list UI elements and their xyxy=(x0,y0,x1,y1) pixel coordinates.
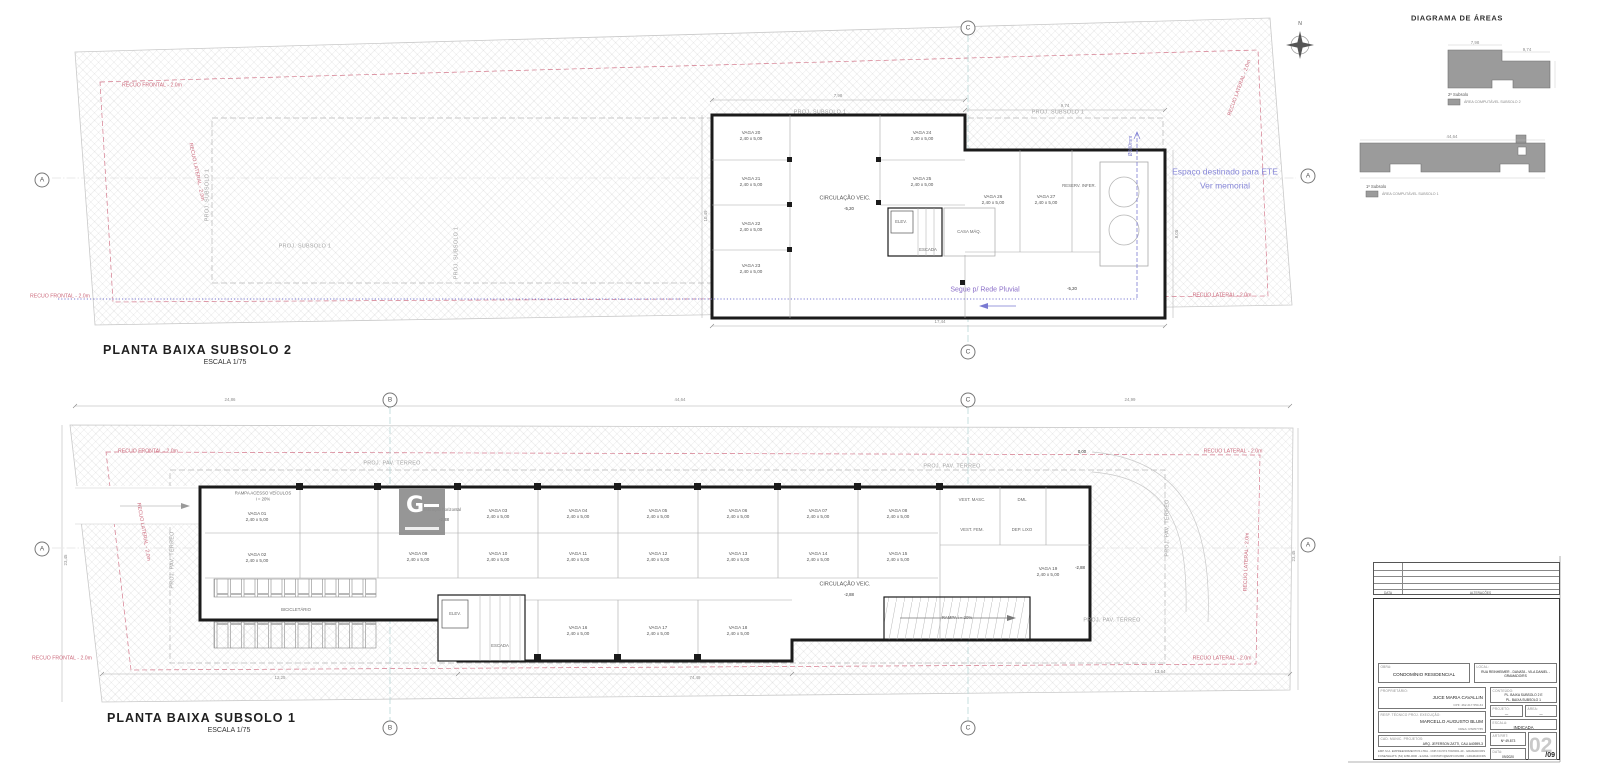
area-diagram-bump xyxy=(1516,135,1526,143)
projeto-label: PROJETO: xyxy=(1493,707,1510,711)
drawing-linework xyxy=(0,0,1600,778)
diagram-title: DIAGRAMA DE ÁREAS xyxy=(1411,14,1503,23)
proprietario-doc: CPF: 462.217.550-34 xyxy=(1453,703,1483,707)
resp-tecnico-box: RESP. TÉCNICO PROJ. EXECUÇÃO: MARCELLO A… xyxy=(1378,711,1486,733)
escala-box: ESCALA: INDICADA xyxy=(1490,719,1557,730)
drawing-sheet: PROJ. SUBSOLO 1PROJ. SUBSOLO 1PROJ. SUBS… xyxy=(0,0,1600,778)
plan1-scale: ESCALA 1/75 xyxy=(208,727,251,734)
plan1-title: PLANTA BAIXA SUBSOLO 1 xyxy=(107,711,296,725)
resp-tecnico-label: RESP. TÉCNICO PROJ. EXECUÇÃO: xyxy=(1381,713,1441,717)
art-value: Nº 49.873 xyxy=(1493,739,1523,743)
plan2-scale: ESCALA 1/75 xyxy=(204,359,247,366)
bike-rack-1 xyxy=(214,579,376,597)
bike-rack-2 xyxy=(214,622,376,648)
area-diagram-void xyxy=(1518,147,1526,155)
revision-table: DATA ALTERAÇÕES xyxy=(1373,562,1560,595)
revision-col-data: DATA xyxy=(1374,589,1402,596)
local-box: LOCAL: RUA REINHEIMER - DANATA - VILA DA… xyxy=(1474,663,1557,683)
legend-subsolo2-item: ÁREA COMPUTÁVEL SUBSOLO 2 xyxy=(1464,100,1521,104)
driveway-arc-inner xyxy=(1092,472,1186,612)
local-label: LOCAL: xyxy=(1477,665,1490,669)
projeto-box: PROJETO: — xyxy=(1490,705,1523,717)
north-arrow-icon xyxy=(1286,31,1314,59)
plan2-title: PLANTA BAIXA SUBSOLO 2 xyxy=(103,343,292,357)
data-box: DATA: 09/2020 xyxy=(1490,748,1526,760)
area-diagram-subsolo1 xyxy=(1360,143,1545,172)
north-label: N xyxy=(1298,21,1302,27)
logo-arm xyxy=(424,504,439,507)
projeto-value: — xyxy=(1493,712,1520,716)
conteudo-box: CONTEÚDO: PL. BAIXA SUBSOLO 2 E PL. BAIX… xyxy=(1490,687,1557,703)
obra-box: OBRA: CONDOMÍNIO RESIDENCIAL xyxy=(1378,663,1470,683)
area-label: ÁREA: xyxy=(1528,707,1539,711)
legend-swatch-subsolo2 xyxy=(1448,99,1460,105)
sheet-total: /09 xyxy=(1545,752,1555,759)
cad-munic-box: CAD. MUNIC. PROJETOS: ARQ. JEFERSON ZATT… xyxy=(1378,735,1486,747)
title-block: DATA ALTERAÇÕES OBRA: CONDOMÍNIO RESIDEN… xyxy=(1373,562,1560,762)
art-box: ART/RRT: Nº 49.873 xyxy=(1490,732,1526,746)
local-value: RUA REINHEIMER - DANATA - VILA DANIEL - … xyxy=(1477,670,1554,679)
art-label: ART/RRT: xyxy=(1493,734,1509,738)
watermark-logo: G xyxy=(399,489,445,535)
obra-value: CONDOMÍNIO RESIDENCIAL xyxy=(1381,672,1467,677)
proprietario-value: JUCE MARIA CAVALLIN xyxy=(1381,695,1483,700)
legend-subsolo1-item: ÁREA COMPUTÁVEL SUBSOLO 1 xyxy=(1382,192,1439,196)
fine-print-2: FONE/WHATS: (54) 3286-0000 - E-MAIL: CON… xyxy=(1378,754,1486,758)
title-block-main: OBRA: CONDOMÍNIO RESIDENCIAL LOCAL: RUA … xyxy=(1373,598,1560,760)
legend-subsolo2-title: 2º Subsolo xyxy=(1448,92,1468,97)
obra-label: OBRA: xyxy=(1381,665,1392,669)
reservoir-tank-2 xyxy=(1109,215,1139,245)
area-box: ÁREA: — xyxy=(1525,705,1557,717)
legend-subsolo1-title: 1º Subsolo xyxy=(1366,184,1386,189)
revision-col-alteracoes: ALTERAÇÕES xyxy=(1402,589,1559,596)
cad-munic-label: CAD. MUNIC. PROJETOS: xyxy=(1381,737,1424,741)
data-value: 09/2020 xyxy=(1493,755,1523,759)
resp-tecnico-value: MARCELLO AUGUSTO BLUM xyxy=(1381,719,1483,724)
proprietario-label: PROPRIETÁRIO: xyxy=(1381,689,1409,693)
driveway-arc-outer xyxy=(1092,452,1208,622)
escala-value: INDICADA xyxy=(1493,725,1554,730)
area-value: — xyxy=(1528,712,1554,716)
conteudo-line1: PL. BAIXA SUBSOLO 2 E xyxy=(1493,693,1554,697)
reservoir-tank-1 xyxy=(1109,177,1139,207)
data-label: DATA: xyxy=(1493,750,1503,754)
conteudo-line2: PL. BAIXA SUBSOLO 1 xyxy=(1493,698,1554,702)
logo-letter: G xyxy=(406,493,424,518)
sheet-number-box: 02 /09 xyxy=(1528,732,1557,760)
proprietario-box: PROPRIETÁRIO: JUCE MARIA CAVALLIN CPF: 4… xyxy=(1378,687,1486,709)
area-diagram-subsolo2 xyxy=(1448,50,1550,88)
logo-caption xyxy=(405,527,439,531)
legend-swatch-subsolo1 xyxy=(1366,191,1378,197)
cad-munic-value: ARQ. JEFERSON ZATTI, CAU A40599-3 xyxy=(1381,742,1483,746)
fine-print-1: EMP. M.A. EMPREENDIMENTOS LTDA - CNPJ 04… xyxy=(1378,749,1486,753)
resp-tecnico-doc: CREA: RS057735 xyxy=(1458,727,1483,731)
